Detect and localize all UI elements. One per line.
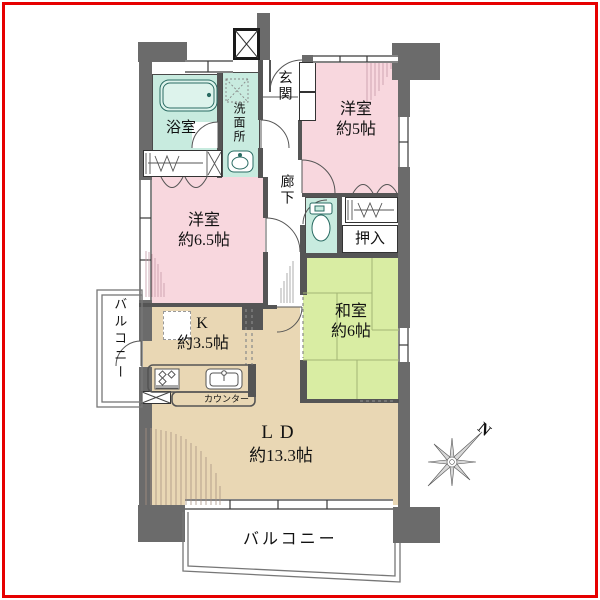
label-balcony-left: バルコニー (111, 297, 127, 382)
label-room5: 洋室 約5帖 (312, 100, 400, 140)
label-room65: 洋室 約6.5帖 (145, 211, 263, 251)
room65-name: 洋室 (145, 211, 263, 231)
wall-washroom-east-up (258, 60, 263, 120)
wall-topleft-block (138, 42, 187, 62)
pipe-space (141, 391, 171, 404)
shoe-cabinet-upper (299, 62, 316, 92)
label-washroom: 洗面所 (231, 102, 246, 144)
wall-washitsu-west-dn (300, 360, 307, 403)
wall-hall-east-1 (298, 120, 302, 160)
label-kitchen: K 約3.5帖 (158, 314, 248, 354)
floor-plan: 浴室 洗面所 玄関 廊下 洋室 約5帖 洋室 約6.5帖 和室 約6帖 K 約3… (0, 0, 600, 600)
ld-name: LD (226, 421, 336, 445)
label-balcony-bottom: バルコニー (243, 530, 338, 550)
label-oshiire: 押入 (355, 230, 385, 249)
wall-west-lower (139, 367, 152, 507)
room5-size: 約5帖 (312, 120, 400, 140)
closet-room5 (345, 197, 398, 223)
kitchen-name: K (158, 314, 248, 334)
washitsu-name: 和室 (305, 302, 397, 322)
wall-toilet-west (300, 225, 305, 255)
wall-corridor-west-dn (263, 252, 268, 309)
closet-room65 (143, 150, 222, 177)
wall-washitsu-north (300, 253, 398, 258)
wall-bottomright-block (393, 507, 440, 543)
room65-size: 約6.5帖 (145, 231, 263, 251)
wall-corridor-west-up (263, 177, 268, 218)
room-toilet (305, 197, 339, 257)
washroom-door-arc (261, 120, 289, 148)
wall-corridor-south-stub (263, 305, 277, 309)
wall-east-3 (398, 362, 410, 510)
room-bath (152, 74, 220, 152)
ld-size: 約13.3帖 (226, 445, 336, 466)
wall-bottomleft-block (138, 505, 185, 542)
elevator-shaft (233, 28, 260, 60)
wall-east-2 (398, 167, 410, 328)
corridor-hatch (281, 261, 293, 303)
wall-washitsu-south (300, 399, 399, 403)
wall-washroom-east-dn (258, 148, 263, 178)
compass-icon (428, 432, 482, 486)
compass-north-label: N (473, 419, 495, 442)
label-corridor: 廊下 (277, 174, 295, 206)
wall-counter-end (248, 364, 256, 397)
room5-name: 洋室 (312, 100, 400, 120)
label-washitsu: 和室 約6帖 (305, 302, 397, 342)
label-ld: LD 約13.3帖 (226, 421, 336, 466)
room65-door-arc (266, 218, 300, 252)
wall-washitsu-west-up (300, 258, 307, 295)
washitsu-size: 約6帖 (305, 322, 397, 342)
label-counter: カウンター (204, 394, 249, 405)
label-bath: 浴室 (166, 119, 196, 138)
label-entrance: 玄関 (275, 70, 293, 102)
kitchen-size: 約3.5帖 (158, 334, 248, 354)
